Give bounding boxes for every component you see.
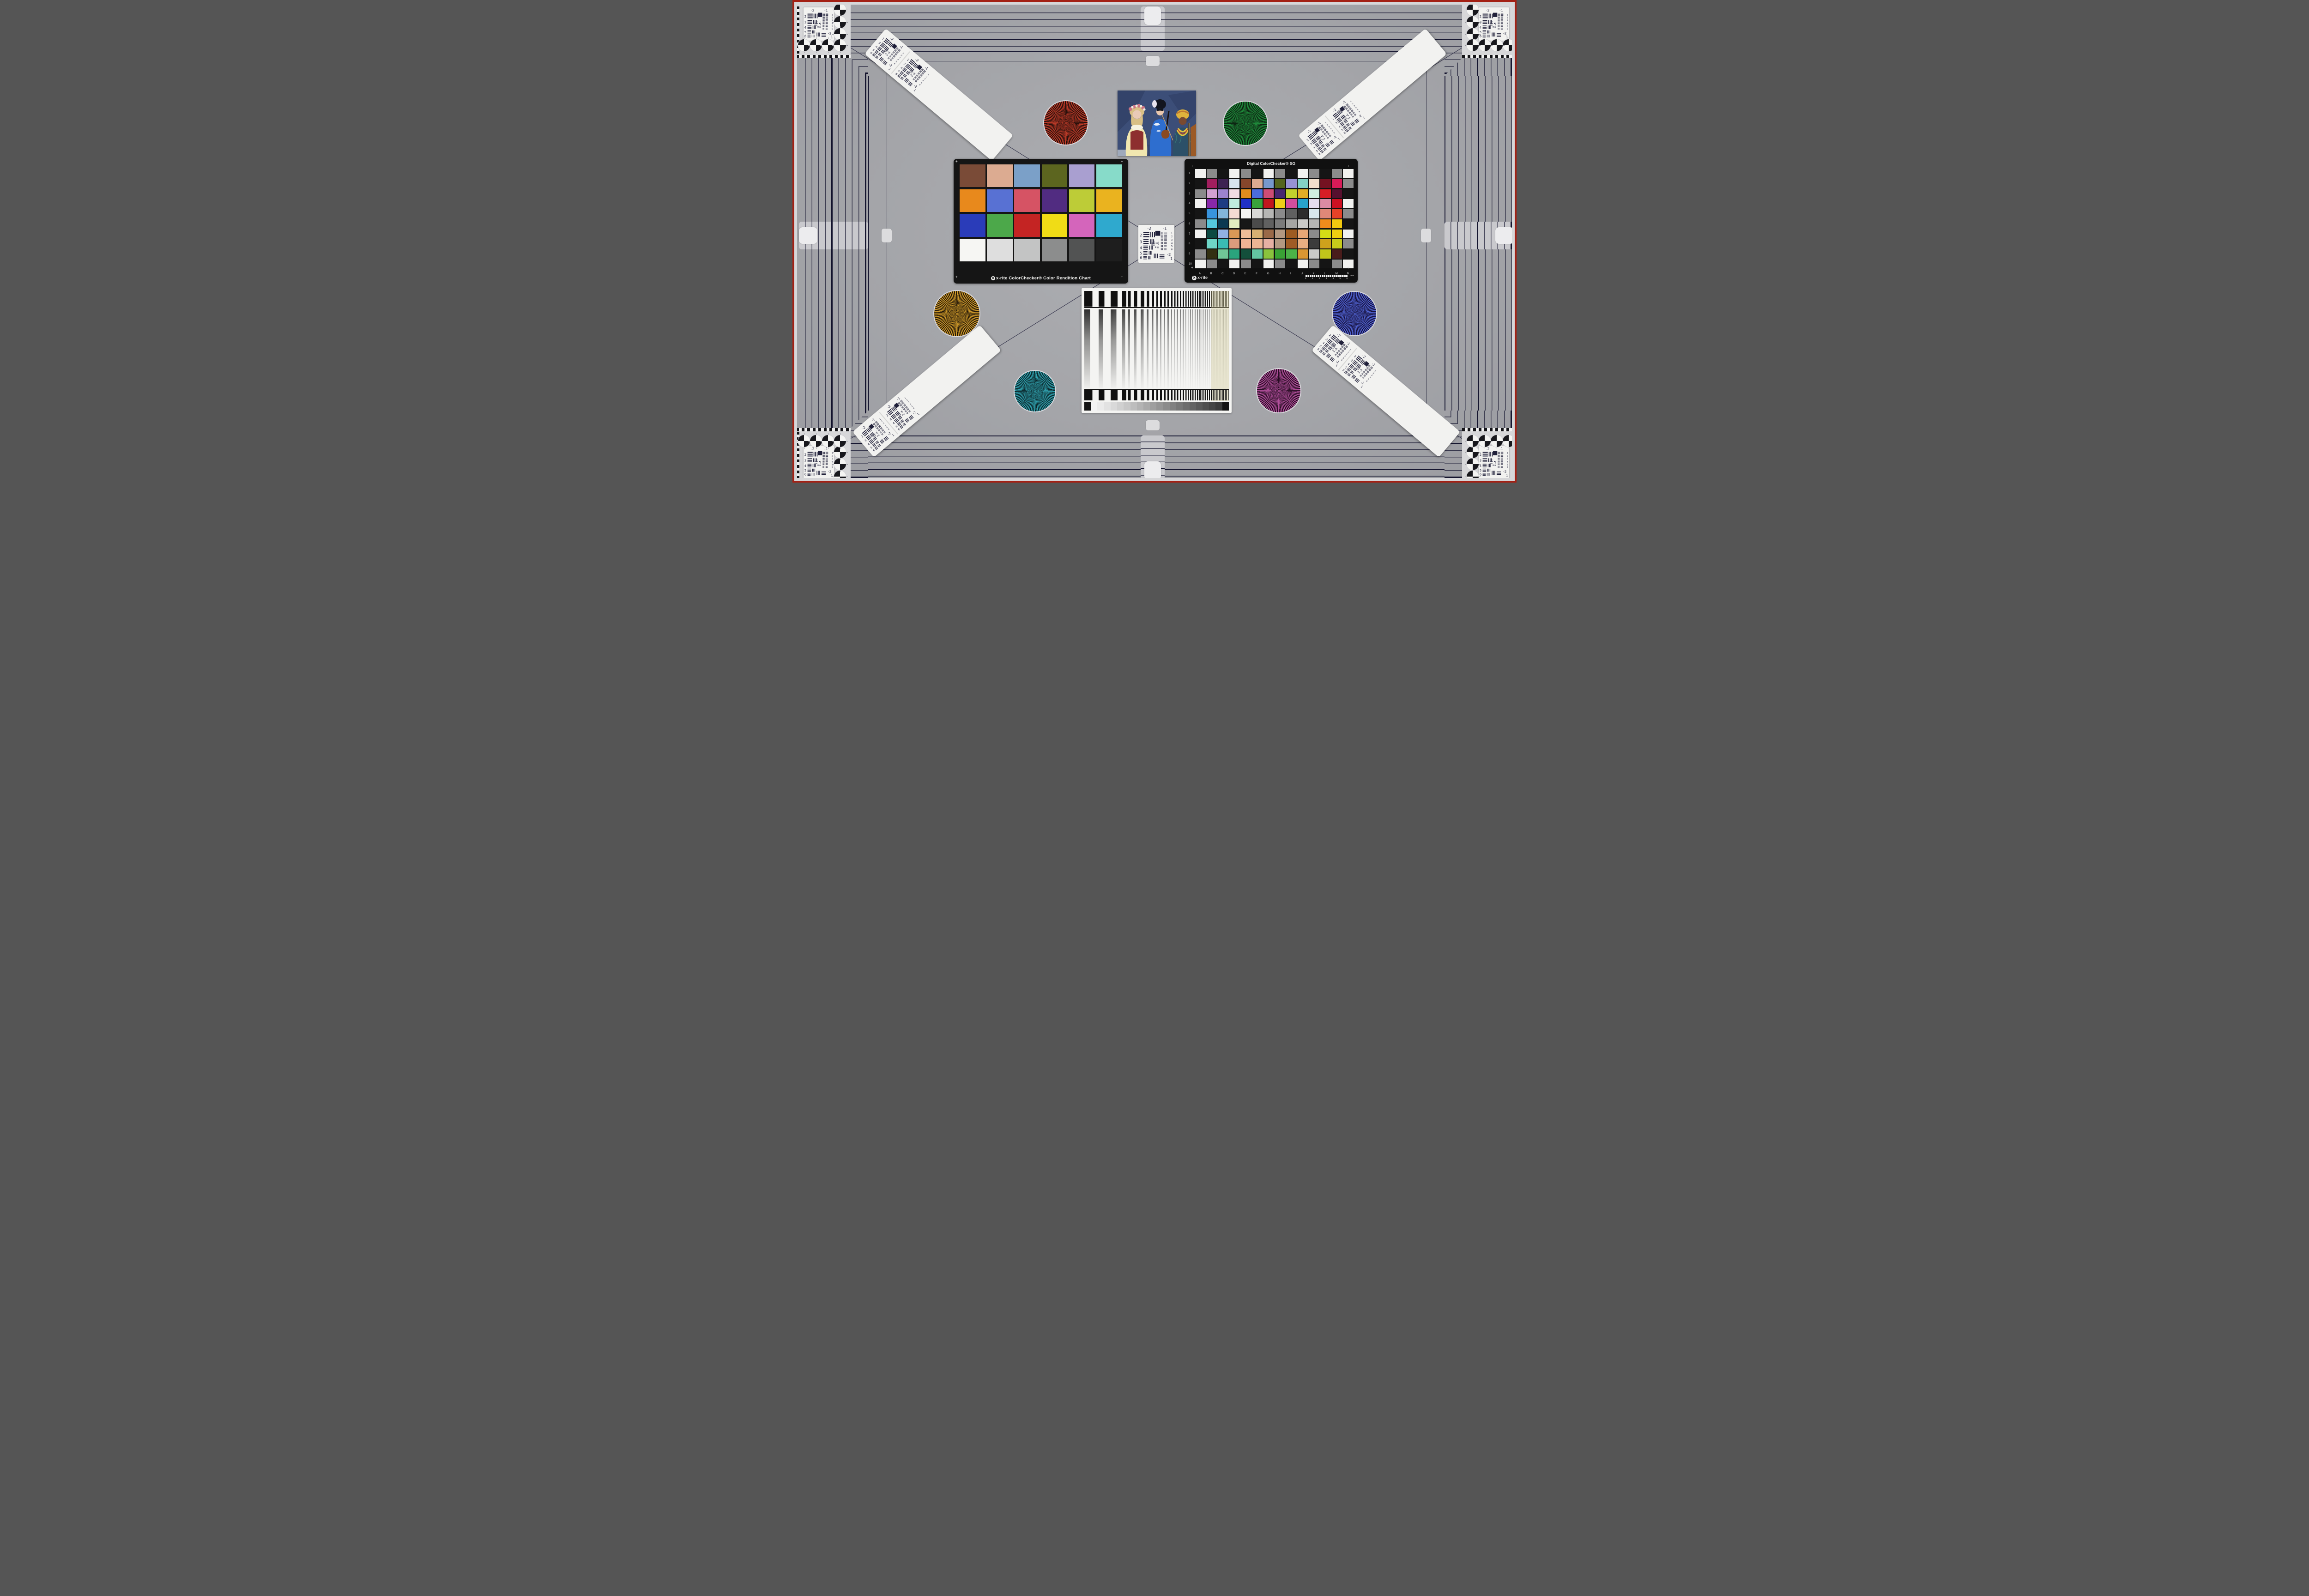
sg-fiducial-cross: + xyxy=(1347,164,1349,168)
colorchecker-24-card: ✕x-rite ColorChecker® Color Rendition Ch… xyxy=(954,159,1128,284)
cc24-patch-16 xyxy=(1042,214,1068,236)
svg-text:1: 1 xyxy=(1170,257,1173,261)
sg-patch-B10 xyxy=(1207,260,1217,269)
sg-row-label-10: 10 xyxy=(1189,263,1192,266)
svg-text:1: 1 xyxy=(1158,240,1159,242)
sg-patch-E3 xyxy=(1241,189,1251,199)
sg-patch-F6 xyxy=(1252,219,1263,229)
ramp-step-7 xyxy=(1130,402,1137,411)
sg-patch-E10 xyxy=(1241,260,1251,269)
sg-patch-D10 xyxy=(1229,260,1240,269)
sg-patch-F1 xyxy=(1252,169,1263,178)
sweep-top-bars-segment-3 xyxy=(1128,291,1142,307)
svg-text:1: 1 xyxy=(1171,232,1173,235)
sg-patch-F10 xyxy=(1252,260,1263,269)
sg-patch-D5 xyxy=(1229,209,1240,218)
sg-patch-C4 xyxy=(1218,199,1228,208)
sg-patch-C7 xyxy=(1218,230,1228,239)
red-star-center-dot xyxy=(1065,122,1067,124)
sg-patch-F3 xyxy=(1252,189,1263,199)
sg-patch-D9 xyxy=(1229,249,1240,259)
cc24-patch-21 xyxy=(1014,239,1040,261)
colorchecker-sg-card: Digital ColorChecker® SG x-rite 0123456 … xyxy=(1185,159,1358,283)
sg-patch-M6 xyxy=(1332,219,1342,229)
sg-patch-F7 xyxy=(1252,230,1263,239)
sg-patch-I7 xyxy=(1286,230,1297,239)
ramp-step-9 xyxy=(1143,402,1150,411)
sg-patch-H7 xyxy=(1275,230,1286,239)
sg-patch-H10 xyxy=(1275,260,1286,269)
sg-patch-J7 xyxy=(1298,230,1308,239)
sg-patch-J9 xyxy=(1298,249,1308,259)
cc24-patch-11 xyxy=(1069,189,1095,212)
cc24-fiducial-cross: + xyxy=(955,160,958,163)
sg-patch-I1 xyxy=(1286,169,1297,178)
sg-patch-B9 xyxy=(1207,249,1217,259)
mm-ruler: 0123456 mm xyxy=(1305,275,1348,277)
cc24-patch-22 xyxy=(1042,239,1068,261)
svg-text:4: 4 xyxy=(1171,242,1173,245)
sg-patch-I10 xyxy=(1286,260,1297,269)
cc24-fiducial-cross: + xyxy=(955,275,958,279)
sg-col-label-M: M xyxy=(1336,272,1338,275)
sg-patch-M3 xyxy=(1332,189,1342,199)
sg-col-label-G: G xyxy=(1267,272,1269,275)
ramp-step-21 xyxy=(1222,402,1229,411)
sg-patch-M8 xyxy=(1332,239,1342,248)
sweep-top-bars xyxy=(1084,291,1229,307)
sg-patch-E2 xyxy=(1241,179,1251,188)
cc24-patch-15 xyxy=(1014,214,1040,236)
mm-ruler-unit: mm xyxy=(1351,274,1354,277)
red-star xyxy=(1044,101,1088,145)
sg-patch-H5 xyxy=(1275,209,1286,218)
sg-patch-F5 xyxy=(1252,209,1263,218)
sg-patch-C6 xyxy=(1218,219,1228,229)
teal-star xyxy=(1015,371,1055,411)
sg-col-label-N: N xyxy=(1347,272,1348,275)
cc24-fiducial-cross: + xyxy=(1121,275,1123,279)
sg-col-label-I: I xyxy=(1290,272,1291,275)
sg-patch-D6 xyxy=(1229,219,1240,229)
ramp-step-0 xyxy=(1084,402,1091,411)
sg-patch-H8 xyxy=(1275,239,1286,248)
ramp-step-5 xyxy=(1117,402,1124,411)
teal-star-center-dot xyxy=(1034,390,1036,393)
sg-patch-G9 xyxy=(1263,249,1274,259)
sg-patch-C8 xyxy=(1218,239,1228,248)
ramp-step-13 xyxy=(1170,402,1176,411)
sg-patch-G4 xyxy=(1263,199,1274,208)
sg-patch-L6 xyxy=(1320,219,1331,229)
sg-col-label-B: B xyxy=(1210,272,1212,275)
sg-patch-B3 xyxy=(1207,189,1217,199)
sg-patch-K6 xyxy=(1309,219,1320,229)
sweep-bottom-bars-segment-8 xyxy=(1200,390,1214,400)
cc24-patch-5 xyxy=(1069,164,1095,187)
sweep-top-bars-segment-1 xyxy=(1099,291,1113,307)
sg-patch-D3 xyxy=(1229,189,1240,199)
svg-text:3: 3 xyxy=(1171,239,1173,242)
sweep-top-bars-segment-7 xyxy=(1185,291,1200,307)
magenta-star-center-dot xyxy=(1278,390,1280,392)
sg-patch-C1 xyxy=(1218,169,1228,178)
sg-patch-B5 xyxy=(1207,209,1217,218)
sg-patch-G5 xyxy=(1263,209,1274,218)
sg-patch-H6 xyxy=(1275,219,1286,229)
ramp-step-6 xyxy=(1124,402,1130,411)
sg-patch-H9 xyxy=(1275,249,1286,259)
sg-patch-A5 xyxy=(1195,209,1206,218)
cc24-patch-6 xyxy=(1096,164,1122,187)
sg-patch-E6 xyxy=(1241,219,1251,229)
frequency-sweep-card xyxy=(1082,288,1232,413)
sg-patch-D1 xyxy=(1229,169,1240,178)
sweep-bottom-bars xyxy=(1084,390,1229,400)
svg-text:4: 4 xyxy=(1140,246,1142,250)
ramp-step-4 xyxy=(1111,402,1117,411)
sg-patch-K1 xyxy=(1309,169,1320,178)
sg-patch-D7 xyxy=(1229,230,1240,239)
svg-text:2: 2 xyxy=(1171,236,1173,238)
sg-patch-C2 xyxy=(1218,179,1228,188)
sg-patch-B6 xyxy=(1207,219,1217,229)
sg-patch-G8 xyxy=(1263,239,1274,248)
sg-patch-M9 xyxy=(1332,249,1342,259)
blue-star xyxy=(1333,292,1376,335)
sg-patch-B8 xyxy=(1207,239,1217,248)
cc24-fiducial-cross: + xyxy=(1121,160,1123,163)
sg-patch-H4 xyxy=(1275,199,1286,208)
green-star xyxy=(1224,102,1267,145)
cc24-patch-10 xyxy=(1042,189,1068,212)
sg-patch-A3 xyxy=(1195,189,1206,199)
sg-patch-G10 xyxy=(1263,260,1274,269)
sg-patch-M10 xyxy=(1332,260,1342,269)
sweep-separator-bottom xyxy=(1084,389,1229,390)
sg-fiducial-cross: + xyxy=(1191,164,1193,168)
sg-patch-I6 xyxy=(1286,219,1297,229)
sg-patch-K7 xyxy=(1309,230,1320,239)
mm-ruler-ticks: 0123456 xyxy=(1305,277,1348,279)
sg-patch-N7 xyxy=(1343,230,1354,239)
ramp-step-14 xyxy=(1176,402,1183,411)
sg-fiducial-cross: + xyxy=(1191,266,1193,270)
sg-patch-N4 xyxy=(1343,199,1354,208)
cc24-patch-12 xyxy=(1096,189,1122,212)
cc24-patch-2 xyxy=(987,164,1013,187)
sg-patch-C3 xyxy=(1218,189,1228,199)
sg-row-label-5: 5 xyxy=(1189,212,1190,215)
sg-row-label-2: 2 xyxy=(1189,182,1190,185)
sg-patch-G2 xyxy=(1263,179,1274,188)
sg-patch-J2 xyxy=(1298,179,1308,188)
ramp-step-11 xyxy=(1156,402,1163,411)
sg-patch-C9 xyxy=(1218,249,1228,259)
sg-patch-D4 xyxy=(1229,199,1240,208)
sg-patch-H1 xyxy=(1275,169,1286,178)
cc24-patch-23 xyxy=(1069,239,1095,261)
sg-patch-N3 xyxy=(1343,189,1354,199)
sg-row-label-9: 9 xyxy=(1189,253,1190,255)
cc24-patch-17 xyxy=(1069,214,1095,236)
sg-row-label-6: 6 xyxy=(1189,223,1190,225)
svg-text:5: 5 xyxy=(1140,251,1142,255)
cc24-patch-1 xyxy=(960,164,985,187)
sg-patch-K4 xyxy=(1309,199,1320,208)
sweep-bottom-bars-segment-1 xyxy=(1099,390,1113,400)
sg-row-label-1: 1 xyxy=(1189,172,1190,175)
sg-patch-L5 xyxy=(1320,209,1331,218)
ramp-step-1 xyxy=(1091,402,1097,411)
svg-text:5: 5 xyxy=(1171,245,1173,248)
cc24-patch-20 xyxy=(987,239,1013,261)
ramp-step-12 xyxy=(1163,402,1170,411)
sg-patch-H3 xyxy=(1275,189,1286,199)
ramp-step-16 xyxy=(1190,402,1196,411)
sweep-bottom-bars-segment-0 xyxy=(1084,390,1099,400)
sg-patch-A8 xyxy=(1195,239,1206,248)
sweep-bottom-bars-segment-2 xyxy=(1113,390,1128,400)
sg-patch-L2 xyxy=(1320,179,1331,188)
sg-patch-J10 xyxy=(1298,260,1308,269)
sweep-bottom-bars-segment-3 xyxy=(1128,390,1142,400)
sg-row-label-3: 3 xyxy=(1189,193,1190,195)
cc24-patch-14 xyxy=(987,214,1013,236)
sweep-bottom-bars-segment-4 xyxy=(1142,390,1156,400)
sg-patch-E7 xyxy=(1241,230,1251,239)
sg-patch-H2 xyxy=(1275,179,1286,188)
ramp-step-15 xyxy=(1183,402,1189,411)
sg-col-label-F: F xyxy=(1256,272,1257,275)
sg-patch-G7 xyxy=(1263,230,1274,239)
sg-patch-D2 xyxy=(1229,179,1240,188)
sg-row-label-4: 4 xyxy=(1189,202,1190,205)
sweep-top-bars-segment-0 xyxy=(1084,291,1099,307)
cc24-patch-13 xyxy=(960,214,985,236)
magenta-star xyxy=(1257,369,1300,412)
sg-col-label-H: H xyxy=(1279,272,1281,275)
blue-star-center-dot xyxy=(1354,313,1356,315)
svg-text:-2: -2 xyxy=(1167,252,1171,257)
sg-patch-A7 xyxy=(1195,230,1206,239)
sweep-contrast-fade xyxy=(1084,309,1229,388)
sweep-bottom-bars-segment-5 xyxy=(1156,390,1171,400)
sg-patch-E1 xyxy=(1241,169,1251,178)
ruler-tick-1: 1 xyxy=(1312,277,1313,279)
sg-patch-M7 xyxy=(1332,230,1342,239)
sg-patch-F9 xyxy=(1252,249,1263,259)
sg-patch-K9 xyxy=(1309,249,1320,259)
sg-patch-G1 xyxy=(1263,169,1274,178)
sg-patch-J5 xyxy=(1298,209,1308,218)
sg-col-label-A: A xyxy=(1199,272,1201,275)
svg-text:6: 6 xyxy=(1171,248,1173,251)
sg-patch-J3 xyxy=(1298,189,1308,199)
sg-patch-J8 xyxy=(1298,239,1308,248)
sg-patch-N9 xyxy=(1343,249,1354,259)
sg-row-label-7: 7 xyxy=(1189,233,1190,236)
ruler-tick-5: 5 xyxy=(1340,277,1341,279)
ramp-step-3 xyxy=(1104,402,1111,411)
sg-patch-N6 xyxy=(1343,219,1354,229)
sg-patch-I5 xyxy=(1286,209,1297,218)
orange-star-center-dot xyxy=(956,313,958,315)
sg-patch-F4 xyxy=(1252,199,1263,208)
sweep-top-bars-segment-6 xyxy=(1171,291,1185,307)
colorchecker-sg-title: Digital ColorChecker® SG xyxy=(1185,161,1358,166)
cc24-patch-18 xyxy=(1096,214,1122,236)
grayscale-ramp xyxy=(1084,402,1229,411)
sg-patch-L4 xyxy=(1320,199,1331,208)
sg-col-label-K: K xyxy=(1313,272,1315,275)
sg-patch-E4 xyxy=(1241,199,1251,208)
sg-patch-K2 xyxy=(1309,179,1320,188)
sg-patch-L10 xyxy=(1320,260,1331,269)
ramp-step-17 xyxy=(1196,402,1203,411)
sweep-tint-zone xyxy=(1211,291,1229,401)
sg-patch-I4 xyxy=(1286,199,1297,208)
sg-patch-M1 xyxy=(1332,169,1342,178)
sg-patch-F8 xyxy=(1252,239,1263,248)
ramp-step-8 xyxy=(1137,402,1143,411)
ramp-step-19 xyxy=(1209,402,1215,411)
sg-patch-J4 xyxy=(1298,199,1308,208)
colorchecker-sg-brand: x-rite xyxy=(1192,275,1208,280)
sg-patch-A1 xyxy=(1195,169,1206,178)
sg-patch-E5 xyxy=(1241,209,1251,218)
sweep-separator-top xyxy=(1084,307,1229,308)
sg-patch-E8 xyxy=(1241,239,1251,248)
sg-patch-B7 xyxy=(1207,230,1217,239)
sweep-top-bars-segment-5 xyxy=(1156,291,1171,307)
sweep-top-bars-segment-2 xyxy=(1113,291,1128,307)
ramp-step-20 xyxy=(1215,402,1222,411)
sg-col-label-J: J xyxy=(1301,272,1303,275)
orange-star xyxy=(934,291,979,336)
sg-patch-I2 xyxy=(1286,179,1297,188)
sg-patch-A2 xyxy=(1195,179,1206,188)
sg-patch-I8 xyxy=(1286,239,1297,248)
sg-patch-G3 xyxy=(1263,189,1274,199)
sg-patch-A4 xyxy=(1195,199,1206,208)
sg-patch-L9 xyxy=(1320,249,1331,259)
ramp-step-18 xyxy=(1203,402,1209,411)
sg-patch-N1 xyxy=(1343,169,1354,178)
sg-col-label-C: C xyxy=(1221,272,1223,275)
sg-patch-E9 xyxy=(1241,249,1251,259)
sg-patch-J1 xyxy=(1298,169,1308,178)
test-chart-scene: -2-123456123456-2101-2-123456123456-2101… xyxy=(792,0,1517,483)
sg-patch-I9 xyxy=(1286,249,1297,259)
sg-patch-J6 xyxy=(1298,219,1308,229)
sg-patch-M5 xyxy=(1332,209,1342,218)
sg-patch-A10 xyxy=(1195,260,1206,269)
cc24-patch-24 xyxy=(1096,239,1122,261)
sg-patch-L7 xyxy=(1320,230,1331,239)
sg-patch-C10 xyxy=(1218,260,1228,269)
sg-col-label-E: E xyxy=(1245,272,1246,275)
sg-patch-M2 xyxy=(1332,179,1342,188)
sg-patch-I3 xyxy=(1286,189,1297,199)
svg-text:-2: -2 xyxy=(1147,227,1151,231)
sg-patch-K5 xyxy=(1309,209,1320,218)
sg-patch-A9 xyxy=(1195,249,1206,259)
sweep-top-bars-segment-4 xyxy=(1142,291,1156,307)
ruler-tick-0: 0 xyxy=(1305,277,1306,279)
center-resolution-target: -2-123456123456-2101 xyxy=(1138,225,1174,263)
green-star-center-dot xyxy=(1245,122,1247,125)
sweep-bottom-bars-segment-7 xyxy=(1185,390,1200,400)
cc24-patch-19 xyxy=(960,239,985,261)
sg-col-label-D: D xyxy=(1233,272,1235,275)
sg-patch-B4 xyxy=(1207,199,1217,208)
ruler-tick-3: 3 xyxy=(1326,277,1327,279)
xrite-logo-icon: ✕ xyxy=(991,276,995,280)
sg-patch-N8 xyxy=(1343,239,1354,248)
svg-text:0: 0 xyxy=(1154,240,1155,242)
cc24-patch-7 xyxy=(960,189,985,212)
sg-patch-F2 xyxy=(1252,179,1263,188)
sweep-bottom-bars-segment-6 xyxy=(1171,390,1185,400)
sg-col-label-L: L xyxy=(1324,272,1325,275)
sg-patch-A6 xyxy=(1195,219,1206,229)
ruler-tick-2: 2 xyxy=(1319,277,1320,279)
svg-text:3: 3 xyxy=(1140,240,1142,244)
sg-patch-B1 xyxy=(1207,169,1217,178)
sg-patch-M4 xyxy=(1332,199,1342,208)
ramp-step-2 xyxy=(1097,402,1104,411)
portrait-photo-card xyxy=(1118,91,1196,156)
cc24-patch-3 xyxy=(1014,164,1040,187)
cc24-patch-9 xyxy=(1014,189,1040,212)
sweep-bottom-bars-segment-9 xyxy=(1215,390,1229,400)
sg-patch-K3 xyxy=(1309,189,1320,199)
sg-patch-N5 xyxy=(1343,209,1354,218)
ramp-step-10 xyxy=(1150,402,1156,411)
sg-patch-N2 xyxy=(1343,179,1354,188)
colorchecker-24-label: ✕x-rite ColorChecker® Color Rendition Ch… xyxy=(954,276,1128,281)
sg-patch-L1 xyxy=(1320,169,1331,178)
sg-patch-L8 xyxy=(1320,239,1331,248)
sg-patch-K10 xyxy=(1309,260,1320,269)
svg-text:2: 2 xyxy=(1140,233,1142,237)
cc24-patch-4 xyxy=(1042,164,1068,187)
ruler-tick-4: 4 xyxy=(1333,277,1334,279)
sg-patch-K8 xyxy=(1309,239,1320,248)
sg-patch-C5 xyxy=(1218,209,1228,218)
ruler-tick-6: 6 xyxy=(1346,277,1348,279)
sg-row-label-8: 8 xyxy=(1189,242,1190,245)
sg-patch-D8 xyxy=(1229,239,1240,248)
svg-text:6: 6 xyxy=(1140,256,1142,260)
sg-fiducial-cross: + xyxy=(1347,266,1349,270)
sg-patch-B2 xyxy=(1207,179,1217,188)
svg-text:-1: -1 xyxy=(1163,227,1167,231)
cc24-patch-8 xyxy=(987,189,1013,212)
sg-patch-G6 xyxy=(1263,219,1274,229)
sg-patch-L3 xyxy=(1320,189,1331,199)
